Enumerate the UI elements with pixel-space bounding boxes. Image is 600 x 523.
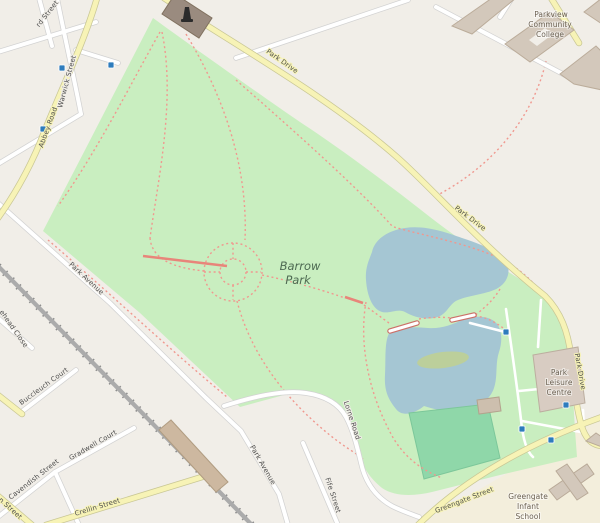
bus-stop-icon (59, 65, 65, 71)
blue-marker-icon (563, 402, 569, 408)
label-barrow-park-line2: Park (285, 273, 312, 287)
label-barrow-park-line1: Barrow (280, 259, 321, 273)
label-leisure-line3: Centre (546, 388, 571, 397)
blue-marker-icon (503, 329, 509, 335)
map-svg: rd Street Warwick Street Abbey Road Park… (0, 0, 600, 523)
label-school-line3: School (516, 512, 541, 521)
pitch-building (477, 397, 501, 414)
blue-marker-icon (548, 437, 554, 443)
label-college-line2: Community (528, 20, 572, 29)
label-leisure-line1: Park (551, 368, 568, 377)
label-school-line1: Greengate (508, 492, 548, 501)
label-school-line2: Infant (517, 502, 539, 511)
label-leisure-line2: Leisure (546, 378, 573, 387)
label-college-line1: Parkview (534, 10, 567, 19)
map-canvas[interactable]: rd Street Warwick Street Abbey Road Park… (0, 0, 600, 523)
bus-stop-icon (108, 62, 114, 68)
label-college-line3: College (536, 30, 564, 39)
blue-marker-icon (519, 426, 525, 432)
